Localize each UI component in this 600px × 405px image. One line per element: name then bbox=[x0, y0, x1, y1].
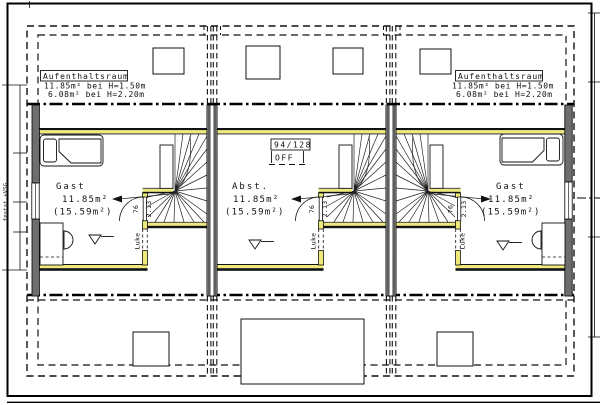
stair-walk-arrow-icon bbox=[291, 196, 301, 203]
top-knee-walls bbox=[39, 128, 565, 134]
room-area: 11.85m² bbox=[488, 195, 534, 205]
dimension-lines bbox=[2, 1, 600, 337]
level-marker-icon bbox=[497, 241, 522, 250]
room-label-right: Gast 11.85m² (15.59m²) bbox=[481, 182, 541, 218]
bottom-knee-walls bbox=[39, 265, 565, 271]
room-name: Gast bbox=[56, 182, 86, 192]
roof-window bbox=[420, 49, 451, 74]
stair-bottom-walls bbox=[148, 222, 456, 228]
door-height-dim: 2.13 bbox=[460, 201, 468, 218]
door-height-dim: 2.13 bbox=[145, 201, 153, 218]
desk-left bbox=[40, 223, 73, 265]
stair-treads-middle-unit bbox=[327, 134, 386, 222]
shaft-right-unit bbox=[430, 145, 443, 189]
stair-walk-arrow-icon bbox=[112, 196, 122, 203]
shaft-blocks bbox=[160, 145, 443, 189]
roof-space-line2: 6.08m² bei H=2.20m bbox=[48, 90, 145, 99]
roof-window bbox=[153, 48, 184, 74]
shaft-middle-unit bbox=[339, 145, 352, 189]
roof-window bbox=[246, 46, 280, 79]
stair-treads-left-unit bbox=[148, 134, 207, 222]
shaft-left-unit bbox=[160, 145, 173, 189]
roof-window bbox=[133, 332, 169, 366]
door-width-dim: 76 bbox=[132, 205, 140, 213]
level-markers bbox=[89, 235, 522, 250]
room-label-left: Gast 11.85m² (15.59m²) bbox=[53, 182, 113, 218]
desk-right bbox=[532, 223, 565, 265]
right-gable-wall bbox=[565, 219, 572, 296]
left-gable-wall bbox=[32, 219, 39, 296]
roof-window-tag: 94/128 OFF bbox=[269, 139, 312, 165]
level-marker-icon bbox=[89, 235, 114, 244]
stair-landing-walls bbox=[143, 188, 461, 193]
pillow bbox=[44, 139, 57, 162]
roof-window bbox=[333, 48, 363, 74]
door-width-dim: 76 bbox=[308, 205, 316, 213]
level-marker-icon bbox=[249, 240, 274, 249]
floor-plan-canvas: Aufenthaltsraum 11.85m² bei H=1.50m 6.08… bbox=[0, 0, 600, 405]
bed-right bbox=[500, 134, 563, 165]
door-width-dim: 76 bbox=[447, 205, 455, 213]
roof-space-line2: 6.08m² bei H=2.20m bbox=[456, 90, 553, 99]
roof-openings bbox=[133, 46, 473, 384]
room-area: 11.85m² bbox=[62, 195, 108, 205]
dormer-outline bbox=[241, 319, 364, 384]
pillow bbox=[547, 138, 560, 161]
chair bbox=[64, 231, 73, 249]
bed-left bbox=[40, 135, 103, 166]
roof-space-label-right: Aufenthaltsraum 11.85m² bei H=1.50m 6.08… bbox=[452, 71, 554, 100]
hatch-label: Luke bbox=[310, 233, 318, 250]
room-gross-area: (15.59m²) bbox=[225, 208, 285, 218]
roof-window-size: 94/128 bbox=[274, 141, 312, 150]
roof-window-state: OFF bbox=[275, 154, 294, 163]
hatch-label: Luke bbox=[459, 233, 467, 250]
room-label-middle: Abst. 11.85m² (15.59m²) bbox=[225, 182, 285, 218]
roof-space-label-left: Aufenthaltsraum 11.85m² bei H=1.50m 6.08… bbox=[41, 71, 146, 100]
roof-window bbox=[437, 332, 473, 366]
roof-space-title: Aufenthaltsraum bbox=[458, 72, 544, 81]
right-gable-wall bbox=[565, 105, 572, 182]
left-gable-wall bbox=[32, 105, 39, 183]
room-gross-area: (15.59m²) bbox=[481, 208, 541, 218]
roof-space-title: Aufenthaltsraum bbox=[43, 72, 129, 81]
floor-plan-drawing: Aufenthaltsraum 11.85m² bei H=1.50m 6.08… bbox=[0, 0, 600, 405]
room-gross-area: (15.59m²) bbox=[53, 208, 113, 218]
hatch-label: Luke bbox=[134, 233, 142, 250]
chair bbox=[532, 231, 541, 249]
room-name: Abst. bbox=[232, 182, 269, 192]
door-walls bbox=[143, 193, 461, 265]
room-area: 11.85m² bbox=[233, 195, 279, 205]
room-name: Gast bbox=[496, 182, 526, 192]
door-height-dim: 2.13 bbox=[321, 201, 329, 218]
